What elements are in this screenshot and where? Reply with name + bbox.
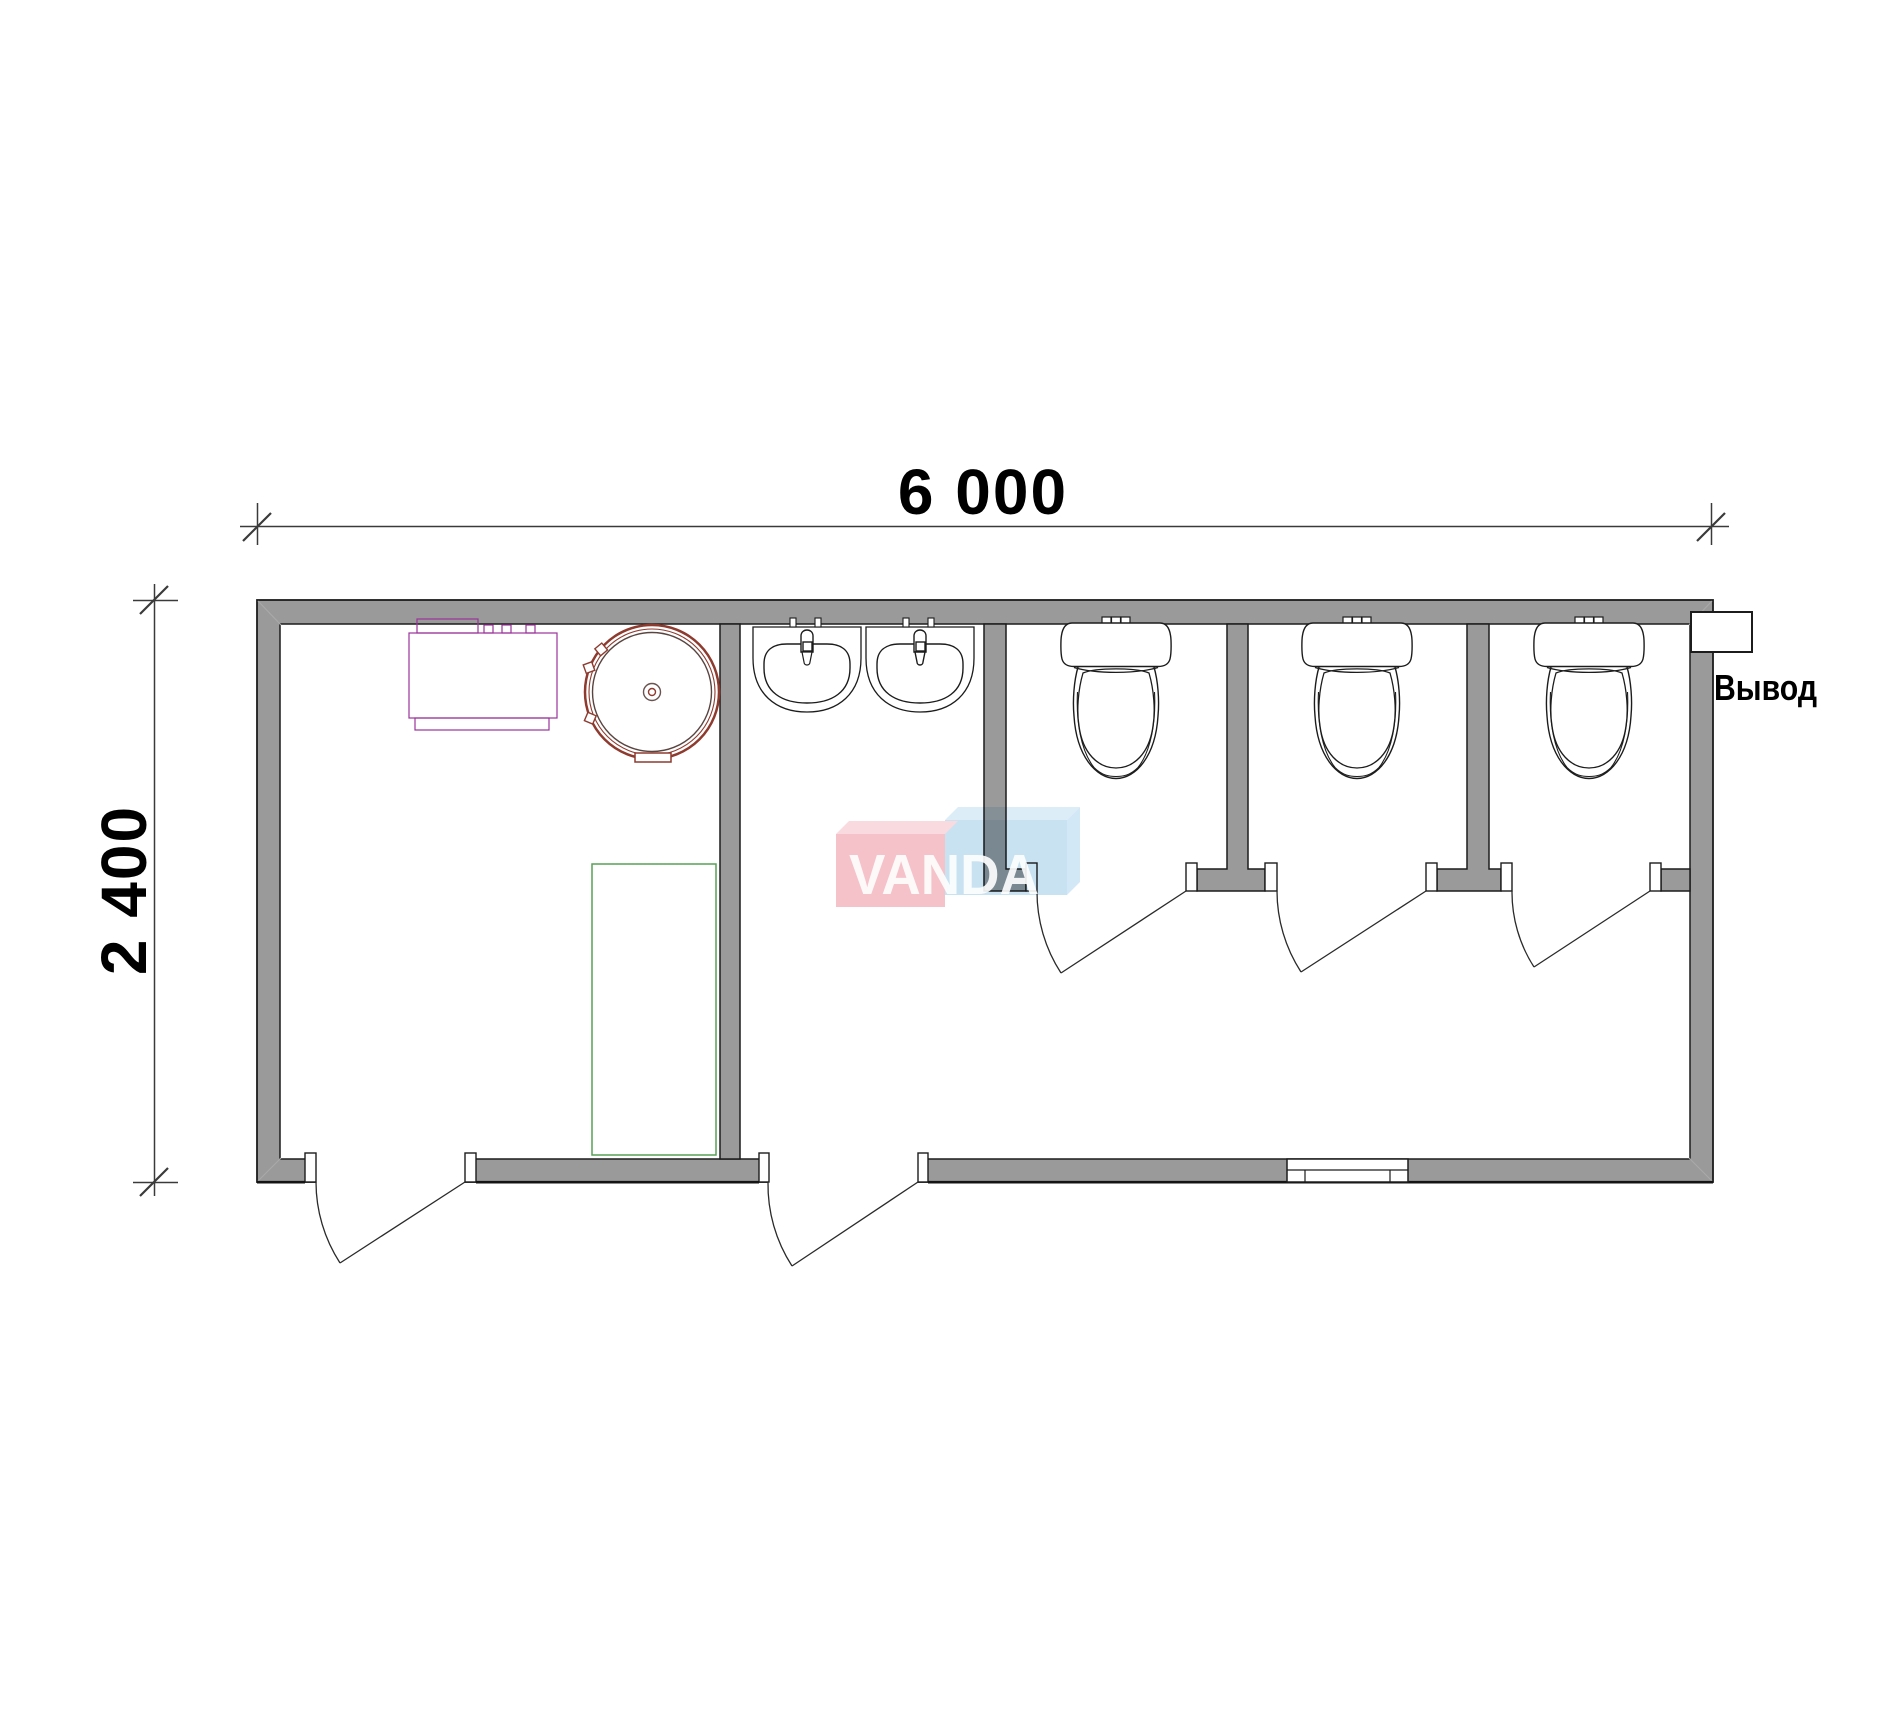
svg-text:2 400: 2 400 bbox=[88, 805, 160, 975]
svg-text:6 000: 6 000 bbox=[898, 456, 1068, 528]
svg-text:Вывод: Вывод bbox=[1714, 667, 1817, 708]
svg-text:VANDA: VANDA bbox=[849, 843, 1039, 907]
